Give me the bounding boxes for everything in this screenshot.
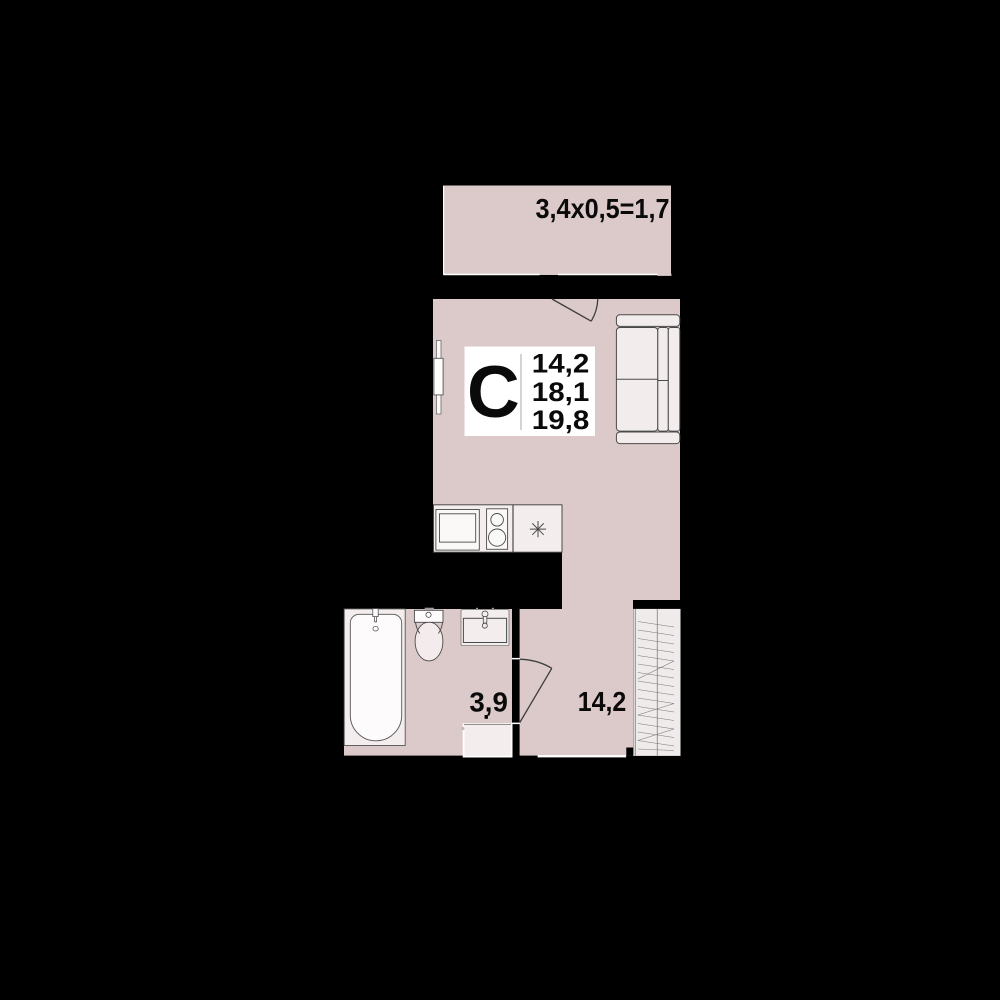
- svg-text:14,2: 14,2: [578, 686, 627, 717]
- svg-text:18,1: 18,1: [532, 377, 590, 407]
- svg-text:14,2: 14,2: [532, 349, 590, 379]
- svg-text:3,4x0,5=1,7: 3,4x0,5=1,7: [536, 193, 670, 224]
- svg-text:3,9: 3,9: [469, 687, 508, 718]
- svg-text:С: С: [467, 352, 520, 433]
- svg-text:19,8: 19,8: [532, 405, 590, 435]
